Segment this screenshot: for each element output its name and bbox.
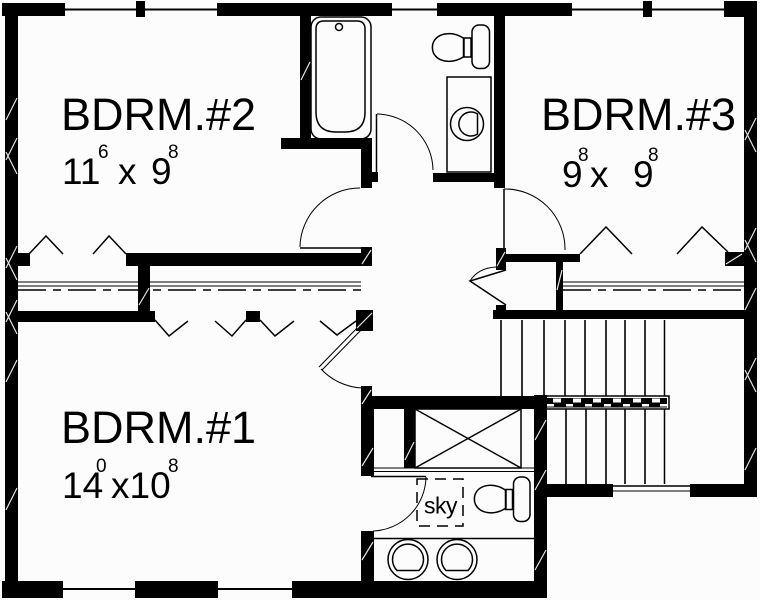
svg-text:8: 8 [168,142,179,163]
svg-text:x: x [118,151,137,192]
svg-text:0: 0 [96,456,107,477]
svg-text:BDRM.#1: BDRM.#1 [61,402,256,453]
svg-text:sky: sky [424,493,458,519]
svg-text:8: 8 [578,145,589,166]
svg-text:6: 6 [98,142,109,163]
svg-text:8: 8 [168,456,179,477]
svg-text:11: 11 [62,151,100,192]
svg-text:BDRM.#3: BDRM.#3 [541,89,736,140]
svg-text:x: x [590,154,609,195]
svg-text:8: 8 [648,145,659,166]
svg-text:x10: x10 [111,465,171,506]
svg-text:BDRM.#2: BDRM.#2 [61,89,256,140]
